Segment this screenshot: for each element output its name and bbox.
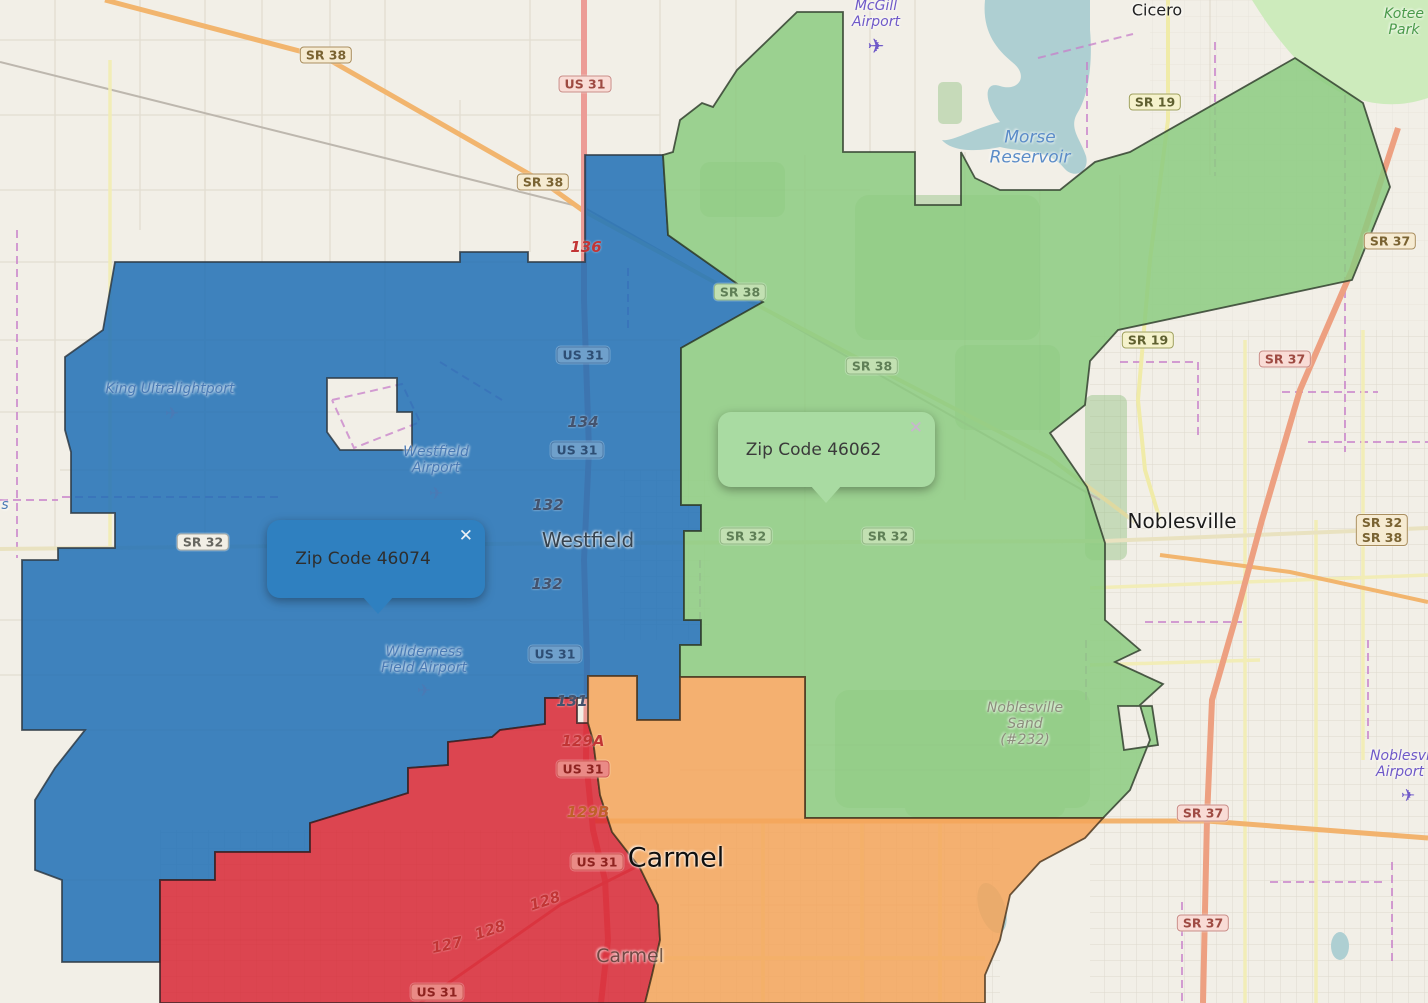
popup-pointer	[362, 596, 394, 614]
popup-zip-46074: Zip Code 46074 ✕	[267, 520, 485, 598]
close-icon[interactable]: ✕	[909, 420, 923, 437]
map-canvas[interactable]: SR 38US 31SR 38SR 19SR 37SR 38SR 19SR 37…	[0, 0, 1428, 1003]
popup-zip-label: Zip Code 46074	[267, 520, 459, 598]
popup-zip-46062: Zip Code 46062 ✕	[718, 412, 935, 487]
basemap-svg	[0, 0, 1428, 1003]
popup-pointer	[810, 485, 842, 503]
close-icon[interactable]: ✕	[459, 528, 473, 545]
popup-zip-label: Zip Code 46062	[718, 412, 909, 487]
